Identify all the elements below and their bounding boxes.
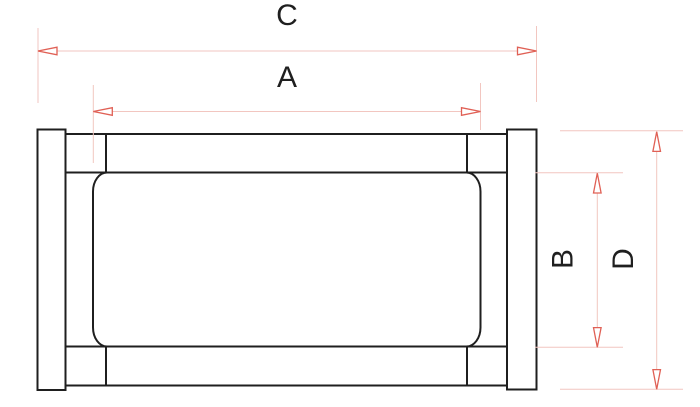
arrowhead-down-icon — [653, 370, 661, 390]
arrowhead-right-icon — [462, 108, 481, 116]
part-rounded-slot — [93, 173, 481, 347]
arrowhead-right-icon — [518, 47, 537, 55]
arrowhead-left-icon — [38, 47, 57, 55]
part-left-endcap — [38, 130, 66, 391]
part-view — [38, 130, 537, 391]
arrowhead-left-icon — [93, 108, 112, 116]
dimension-label-B: B — [547, 249, 580, 269]
arrowhead-up-icon — [594, 173, 602, 193]
drawing-svg: C A B — [0, 0, 700, 407]
part-right-endcap — [507, 130, 537, 390]
dimension-label-D: D — [607, 248, 640, 270]
dimension-A-lines — [93, 83, 480, 163]
arrowhead-down-icon — [594, 328, 602, 348]
dimension-label-A: A — [277, 61, 297, 94]
technical-drawing-canvas: C A B — [0, 0, 700, 407]
dimension-label-C: C — [276, 0, 298, 32]
dimension-A: A — [93, 61, 480, 163]
arrowhead-up-icon — [653, 132, 661, 152]
